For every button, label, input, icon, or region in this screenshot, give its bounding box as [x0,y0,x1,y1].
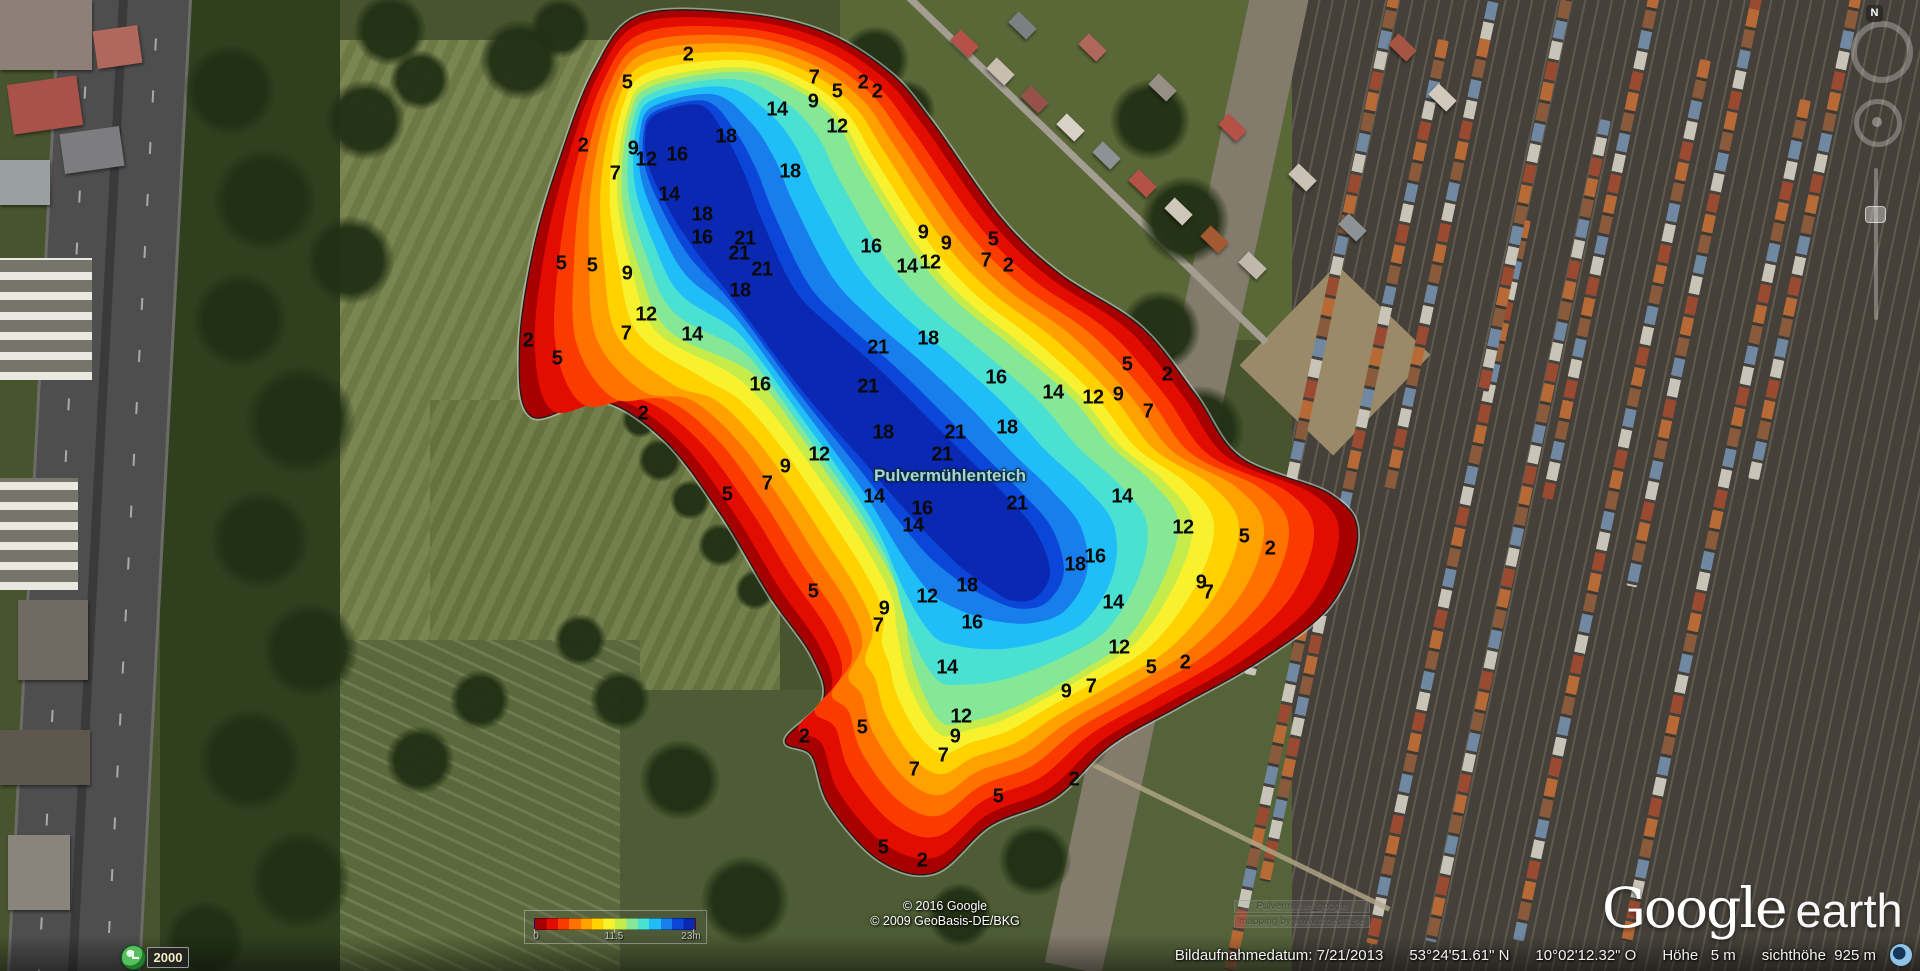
depth-label: 18 [917,328,938,351]
depth-label: 9 [950,726,961,749]
depth-label: 2 [1162,364,1173,387]
depth-label: 18 [872,422,893,445]
depth-label: 16 [1084,546,1105,569]
depth-label: 5 [622,72,633,95]
logo-earth: earth [1796,883,1903,938]
depth-label: 18 [1064,554,1085,577]
depth-label: 18 [729,280,750,303]
eye-altitude-readout: sichthöhe 925 m [1762,947,1876,964]
imagery-year-badge[interactable]: 2000 [147,947,189,968]
depth-label: 14 [863,486,884,509]
depth-label: 7 [610,163,621,186]
depth-label: 18 [691,204,712,227]
depth-label: 16 [666,144,687,167]
google-earth-logo: Google earth [1602,876,1903,940]
depth-label: 7 [1143,401,1154,424]
depth-label: 12 [919,252,940,275]
depth-label: 5 [832,81,843,104]
depth-label: 14 [902,515,923,538]
attribution-line-2: © 2009 GeoBasis-DE/BKG [845,914,1045,929]
depth-label: 21 [944,422,965,445]
depth-label: 14 [896,256,917,279]
depth-label: 2 [858,72,869,95]
depth-label: 12 [826,116,847,139]
legend-mid-label: 11.5 [605,931,624,942]
depth-label: 18 [996,417,1017,440]
depth-label: 9 [780,456,791,479]
depth-label: 14 [766,99,787,122]
imagery-date: Bildaufnahmedatum: 7/21/2013 [1175,947,1384,964]
depth-label: 2 [1265,538,1276,561]
depth-label: 5 [878,837,889,860]
depth-label: 2 [578,135,589,158]
move-ring-dot [1872,117,1882,127]
depth-label: 5 [993,786,1004,809]
depth-label: 18 [715,126,736,149]
depth-label: 5 [1239,526,1250,549]
depth-label: 2 [799,726,810,749]
zoom-slider-handle[interactable] [1865,206,1886,223]
depth-label: 2 [872,81,883,104]
depth-legend-gradient [534,918,696,930]
depth-label: 5 [1146,657,1157,680]
depth-label: 5 [808,581,819,604]
depth-label: 7 [762,473,773,496]
depth-label: 14 [658,184,679,207]
depth-label: 14 [1042,382,1063,405]
depth-label: 21 [867,337,888,360]
depth-label: 2 [638,403,649,426]
depth-label: 7 [938,745,949,768]
depth-label: 12 [635,149,656,172]
depth-label: 5 [988,229,999,252]
depth-label: 7 [909,759,920,782]
historical-imagery-clock-icon[interactable] [121,945,146,970]
depth-label: 5 [587,255,598,278]
depth-label: 21 [728,243,749,266]
depth-label: 18 [779,161,800,184]
attribution-line-1: © 2016 Google [845,899,1045,914]
depth-label: 18 [956,575,977,598]
streaming-indicator-icon [1890,944,1912,966]
depth-label: 12 [1172,517,1193,540]
look-ring[interactable] [1851,21,1913,83]
depth-label: 7 [873,615,884,638]
zoom-slider-track[interactable] [1874,168,1878,320]
depth-label: 5 [722,484,733,507]
depth-label: 7 [981,250,992,273]
overlay-watermark: Pulvermühle_google mapping by www.drdept… [1234,900,1370,930]
depth-label: 9 [941,233,952,256]
latitude-readout: 53°24'51.61" N [1409,947,1509,964]
depth-label: 12 [1108,637,1129,660]
depth-label: 9 [1113,384,1124,407]
depth-label: 7 [1086,676,1097,699]
watermark-line-1: Pulvermühle_google [1234,900,1370,913]
lake-name-label: Pulvermühlenteich [874,466,1026,486]
depth-label: 12 [916,586,937,609]
depth-label: 16 [749,374,770,397]
google-earth-viewport[interactable]: 2575229141218291216714181816212121185591… [0,0,1920,971]
depth-label: 5 [552,348,563,371]
logo-google: Google [1602,876,1786,940]
depth-label: 12 [635,304,656,327]
depth-label: 2 [1180,652,1191,675]
depth-label: 21 [1006,493,1027,516]
depth-label: 9 [622,263,633,286]
depth-label: 9 [918,222,929,245]
legend-min-label: 0 [533,931,539,942]
depth-label: 14 [1102,592,1123,615]
elevation-readout: Höhe 5 m [1662,947,1735,964]
depth-label: 12 [808,444,829,467]
depth-label: 7 [809,67,820,90]
depth-label: 14 [681,324,702,347]
depth-label: 21 [931,444,952,467]
depth-legend: 0 11.5 23m [524,910,707,944]
depth-label: 2 [683,44,694,67]
depth-label: 14 [1111,486,1132,509]
depth-label: 16 [961,612,982,635]
depth-label: 16 [860,236,881,259]
depth-label: 12 [1082,387,1103,410]
depth-label: 2 [1069,769,1080,792]
depth-label: 5 [1122,354,1133,377]
depth-label: 2 [523,330,534,353]
depth-label: 16 [985,367,1006,390]
map-attribution: © 2016 Google © 2009 GeoBasis-DE/BKG [845,899,1045,929]
compass-north-button[interactable]: N [1866,5,1883,22]
status-bar: Bildaufnahmedatum: 7/21/2013 53°24'51.61… [1149,939,1920,971]
legend-max-label: 23m [681,931,700,942]
depth-label: 9 [808,91,819,114]
depth-label: 2 [1003,255,1014,278]
watermark-line-2: mapping by www.drdepth.se [1234,915,1370,928]
depth-label: 2 [917,850,928,873]
depth-label: 5 [556,253,567,276]
depth-label: 16 [691,227,712,250]
longitude-readout: 10°02'12.32" O [1535,947,1636,964]
depth-label: 21 [857,376,878,399]
depth-label: 7 [621,323,632,346]
depth-label: 9 [1061,681,1072,704]
depth-label: 5 [857,717,868,740]
depth-label: 7 [1203,582,1214,605]
depth-label: 14 [936,657,957,680]
depth-label: 21 [751,259,772,282]
